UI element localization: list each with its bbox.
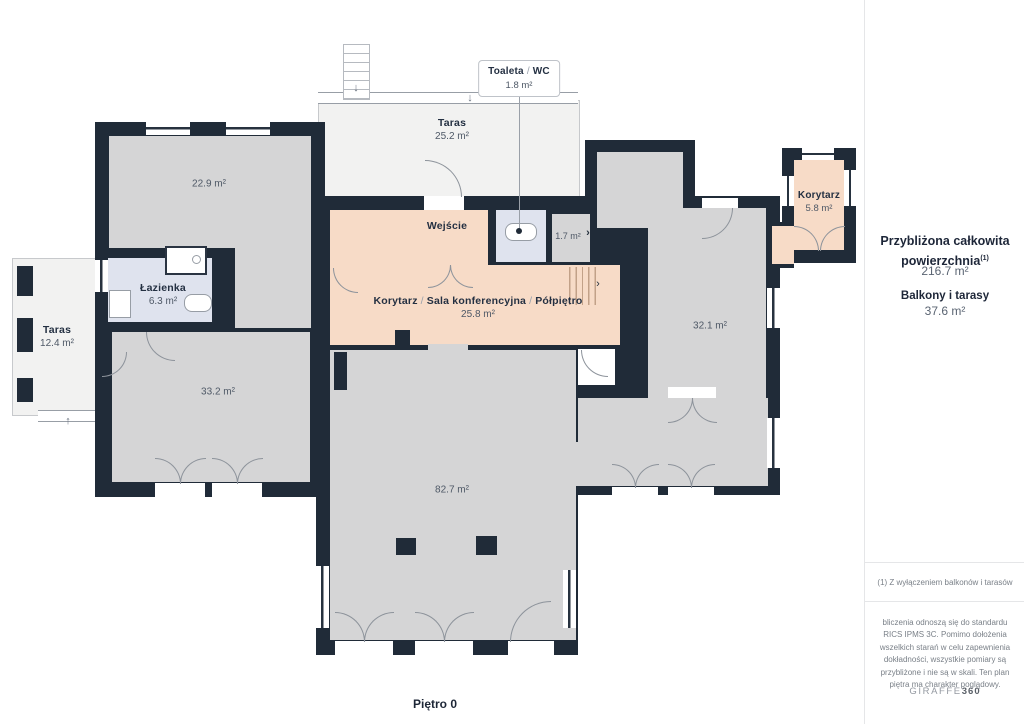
door-gap — [155, 483, 205, 497]
terrace-pillar — [17, 318, 33, 352]
summary-sidebar: Przybliżona całkowita powierzchnia(1) 21… — [864, 0, 1024, 724]
window — [95, 260, 108, 292]
window — [563, 570, 576, 628]
terrace-pillar — [17, 266, 33, 296]
callout-leader-line — [519, 90, 520, 232]
column — [395, 330, 410, 345]
footnote-text: (1) Z wyłączeniem balkonów i tarasów — [865, 578, 1024, 587]
room-label-taras-left: Taras 12.4 m² — [40, 323, 74, 351]
room-label-taras-top: Taras 25.2 m² — [435, 116, 469, 144]
total-area-value: 216.7 m² — [865, 264, 1024, 278]
room-label-lazienka: Łazienka 6.3 m² — [140, 281, 186, 309]
window — [146, 122, 190, 135]
room-label-32-1: 32.1 m² — [693, 319, 727, 333]
room-33-2 — [112, 332, 310, 482]
room-label-wejscie: Wejście — [427, 219, 467, 233]
balcony-title: Balkony i tarasy — [865, 290, 1024, 302]
callout-area: 1.8 m² — [488, 79, 550, 92]
window — [844, 170, 856, 206]
floorplan-viewer: ↓ ↓ ↑ — [0, 0, 1024, 724]
room-22-9-ext — [235, 136, 311, 328]
door-gap — [668, 487, 714, 498]
door-gap — [668, 387, 716, 398]
balcony-value: 37.6 m² — [865, 304, 1024, 318]
hall-opening — [428, 344, 468, 351]
railing-up-arrow-icon: ↑ — [65, 415, 71, 427]
column — [476, 536, 497, 555]
door-gap — [612, 487, 658, 498]
giraffe360-logo: GIRAFFE360 — [865, 686, 1024, 697]
room-label-1-7: 1.7 m² — [555, 230, 581, 242]
toaleta-callout: Toaleta/WC 1.8 m² — [478, 60, 560, 97]
callout-title: Toaleta/WC — [488, 65, 550, 79]
window — [782, 176, 794, 206]
column — [396, 538, 416, 555]
sink-drain-icon — [192, 255, 201, 264]
column — [334, 352, 347, 390]
stair-direction-icon: › — [596, 278, 600, 290]
room-passage — [562, 442, 578, 486]
railing-down-arrow-icon: ↓ — [467, 92, 473, 104]
door-gap — [212, 483, 262, 497]
disclaimer-text: bliczenia odnoszą się do standardu RICS … — [865, 617, 1024, 691]
window — [767, 288, 780, 328]
room-connector — [772, 226, 794, 264]
room-label-main-hall: Korytarz/Sala konferencyjna/Półpiętro 25… — [373, 294, 582, 322]
room-label-22-9: 22.9 m² — [192, 177, 226, 191]
bathtub — [184, 294, 212, 312]
floor-label: Piętro 0 — [413, 697, 457, 711]
stairs-down-arrow-icon: ↓ — [353, 82, 359, 94]
door-direction-icon: › — [586, 227, 590, 239]
door-gap — [424, 196, 464, 210]
door-gap — [335, 641, 393, 655]
window — [802, 148, 834, 160]
door-arc — [581, 350, 608, 377]
room-label-33-2: 33.2 m² — [201, 385, 235, 399]
window — [767, 418, 780, 468]
window — [226, 122, 270, 135]
footnote-marker: (1) — [980, 255, 989, 262]
divider — [865, 562, 1024, 563]
divider — [865, 601, 1024, 602]
terrace-pillar — [17, 378, 33, 402]
door-gap — [508, 641, 554, 655]
room-label-82-7: 82.7 m² — [435, 483, 469, 497]
door-gap — [702, 198, 738, 208]
room-label-korytarz-5-8: Korytarz 5.8 m² — [798, 189, 840, 215]
window — [316, 566, 329, 628]
shower-tray — [109, 290, 131, 318]
callout-leader-dot — [516, 228, 522, 234]
door-gap — [415, 641, 473, 655]
